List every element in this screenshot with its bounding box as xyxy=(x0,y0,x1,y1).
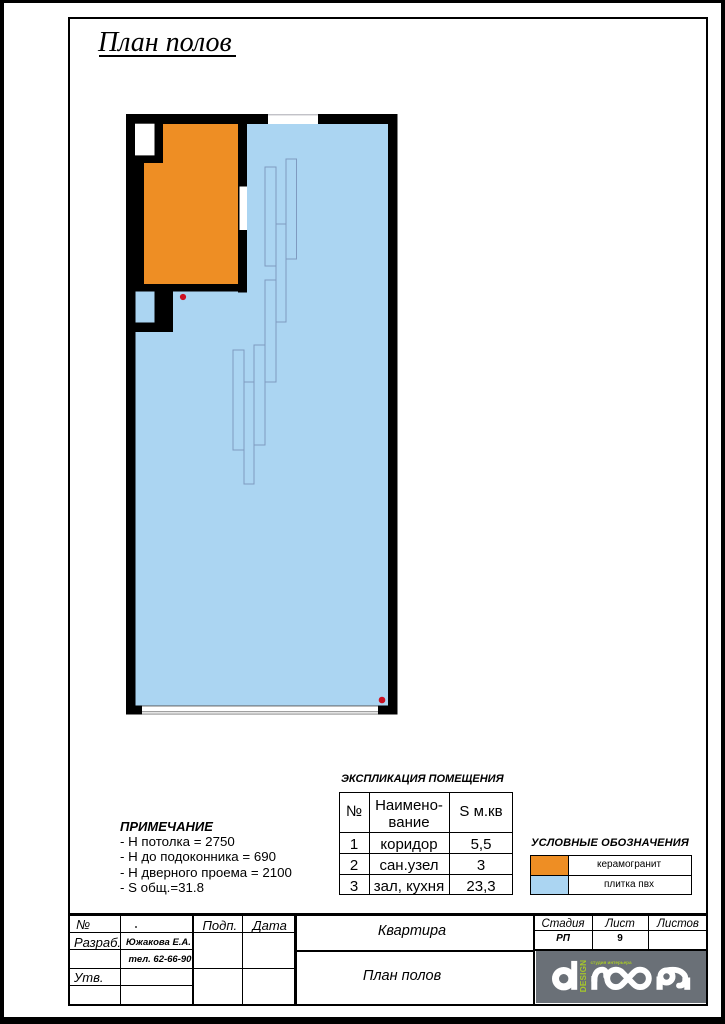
svg-text:DESIGN: DESIGN xyxy=(579,960,588,993)
svg-text:студия интерьера: студия интерьера xyxy=(591,960,632,965)
